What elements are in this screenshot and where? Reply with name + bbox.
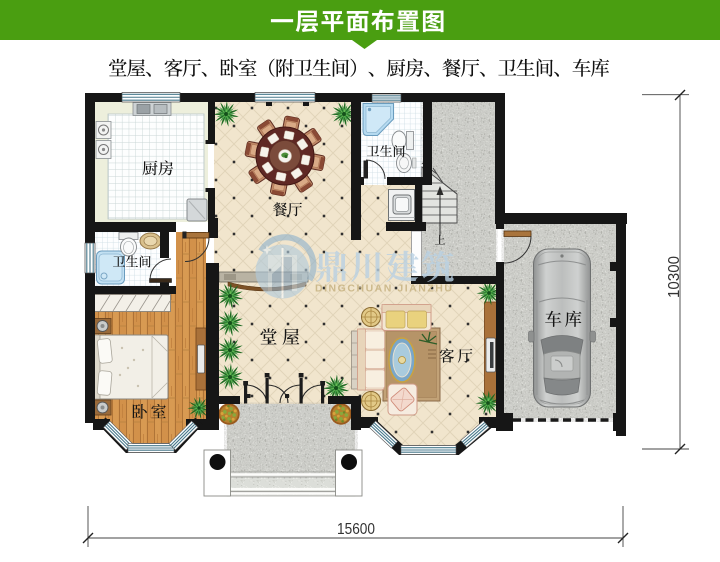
svg-text:15600: 15600 — [337, 521, 375, 538]
svg-text:DINGCHUAN JIANZHU: DINGCHUAN JIANZHU — [315, 283, 452, 295]
svg-text:10300: 10300 — [666, 256, 683, 298]
